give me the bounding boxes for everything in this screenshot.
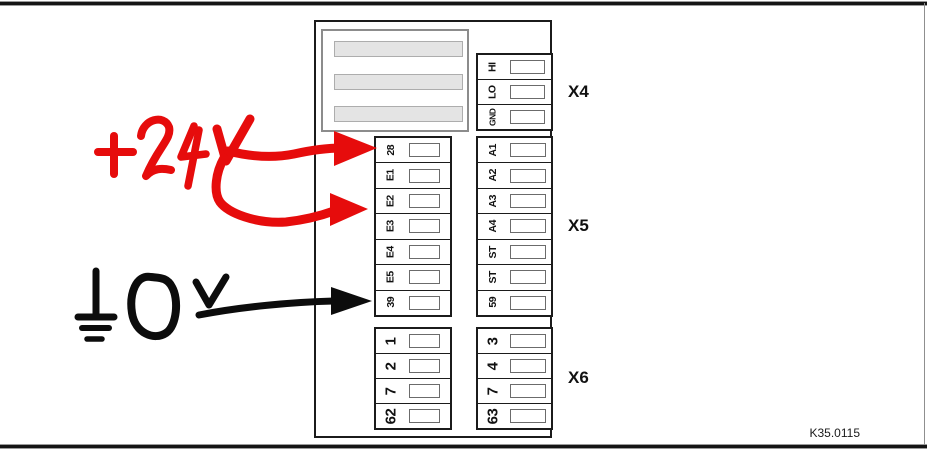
terminal-box	[409, 359, 440, 373]
terminal-column-x5-right: A1 A2 A3 A4 ST ST 59	[476, 136, 553, 317]
black-v-checkmark	[196, 277, 226, 305]
terminal-box	[409, 194, 440, 208]
terminal-box	[409, 296, 440, 310]
terminal-row-x5-right-st: ST	[478, 264, 551, 289]
terminal-row-x5-left-e2: E2	[376, 188, 450, 213]
terminal-label: E2	[386, 195, 397, 207]
terminal-label-wrap: 1	[378, 329, 404, 353]
terminal-row-x6-left-1: 1	[376, 329, 450, 353]
terminal-box	[510, 60, 545, 74]
terminal-label-wrap: 7	[480, 379, 506, 403]
block-label-x5: X5	[568, 216, 589, 236]
terminal-box	[409, 169, 440, 183]
terminal-label: A4	[488, 220, 499, 232]
terminal-row-x6-left-2: 2	[376, 353, 450, 378]
display-bar	[334, 41, 463, 57]
terminal-label-wrap: GND	[480, 105, 506, 129]
terminal-box	[510, 334, 546, 348]
terminal-label: 62	[384, 408, 399, 424]
terminal-row-x4-gnd: GND	[478, 104, 551, 129]
terminal-label-wrap: 2	[378, 354, 404, 378]
terminal-box	[510, 194, 546, 208]
terminal-row-x5-right-a2: A2	[478, 162, 551, 187]
terminal-box	[510, 169, 546, 183]
terminal-box	[510, 384, 546, 398]
terminal-label-wrap: ST	[480, 240, 506, 264]
terminal-box	[409, 270, 440, 284]
terminal-label: 4	[486, 362, 501, 370]
terminal-row-x5-right-a4: A4	[478, 213, 551, 238]
terminal-column-x4: HI LO GND	[476, 53, 553, 131]
terminal-label: 39	[386, 297, 397, 308]
terminal-label: HI	[488, 62, 499, 72]
terminal-label-wrap: HI	[480, 55, 506, 79]
terminal-row-x5-left-e5: E5	[376, 264, 450, 289]
figure-reference-number: K35.0115	[770, 426, 860, 440]
terminal-row-x4-hi: HI	[478, 55, 551, 79]
terminal-row-x6-right-4: 4	[478, 353, 551, 378]
red-digit-4-stem-stroke	[188, 130, 199, 186]
terminal-label-wrap: E2	[378, 189, 404, 213]
terminal-label: 2	[384, 362, 399, 370]
red-v-checkmark	[217, 119, 250, 161]
terminal-box	[409, 334, 440, 348]
terminal-box	[409, 409, 440, 423]
display-bar	[334, 106, 463, 122]
terminal-box	[409, 219, 440, 233]
terminal-label-wrap: A3	[480, 189, 506, 213]
terminal-box	[409, 384, 440, 398]
block-label-x4: X4	[568, 82, 589, 102]
terminal-label-wrap: 4	[480, 354, 506, 378]
terminal-row-x6-left-7: 7	[376, 378, 450, 403]
terminal-row-x5-right-st: ST	[478, 239, 551, 264]
terminal-row-x6-left-62: 62	[376, 403, 450, 428]
terminal-label: E1	[386, 170, 397, 182]
terminal-label: LO	[488, 85, 499, 99]
terminal-label: ST	[488, 271, 499, 283]
terminal-label: GND	[489, 108, 498, 125]
terminal-label: E5	[386, 271, 397, 283]
terminal-label-wrap: E4	[378, 240, 404, 264]
terminal-row-x6-right-7: 7	[478, 378, 551, 403]
terminal-box	[510, 110, 545, 124]
terminal-label: 3	[486, 337, 501, 345]
terminal-box	[510, 296, 546, 310]
terminal-label-wrap: E5	[378, 265, 404, 289]
frame-bottom-line	[0, 444, 927, 449]
terminal-row-x5-left-39: 39	[376, 290, 450, 315]
terminal-label-wrap: ST	[480, 265, 506, 289]
terminal-label-wrap: 63	[480, 404, 506, 428]
terminal-row-x5-left-28: 28	[376, 138, 450, 162]
terminal-label-wrap: 39	[378, 291, 404, 315]
terminal-box	[510, 143, 546, 157]
terminal-label: 1	[384, 337, 399, 345]
terminal-label-wrap: 7	[378, 379, 404, 403]
terminal-label-wrap: A1	[480, 138, 506, 162]
terminal-label-wrap: A4	[480, 214, 506, 238]
terminal-row-x4-lo: LO	[478, 79, 551, 104]
terminal-label: 7	[384, 387, 399, 395]
terminal-row-x5-left-e4: E4	[376, 239, 450, 264]
red-digit-2-stroke	[141, 120, 171, 176]
terminal-label-wrap: A2	[480, 163, 506, 187]
frame-right-line	[924, 3, 925, 445]
terminal-label: 7	[486, 387, 501, 395]
terminal-label-wrap: E3	[378, 214, 404, 238]
terminal-row-x5-left-e1: E1	[376, 162, 450, 187]
terminal-row-x6-right-63: 63	[478, 403, 551, 428]
red-digit-4-stroke	[181, 126, 206, 157]
frame-top-line	[0, 1, 927, 6]
terminal-row-x5-right-59: 59	[478, 290, 551, 315]
wiring-diagram-figure: HI LO GND 28 E1 E2 E3 E4	[0, 0, 927, 453]
terminal-column-x5-left: 28 E1 E2 E3 E4 E5 39	[374, 136, 452, 317]
terminal-label: 59	[488, 297, 499, 308]
display-bar	[334, 74, 463, 90]
block-label-x6: X6	[568, 368, 589, 388]
terminal-box	[510, 245, 546, 259]
terminal-label: E3	[386, 221, 397, 233]
terminal-label-wrap: LO	[480, 80, 506, 104]
terminal-box	[510, 270, 546, 284]
terminal-label: ST	[488, 246, 499, 258]
terminal-label: 28	[386, 145, 397, 156]
terminal-row-x5-right-a3: A3	[478, 188, 551, 213]
terminal-column-x6-left: 1 2 7 62	[374, 327, 452, 430]
terminal-label-wrap: 3	[480, 329, 506, 353]
terminal-label: A1	[488, 144, 499, 156]
display-module	[321, 29, 469, 132]
terminal-box	[510, 359, 546, 373]
terminal-label-wrap: 59	[480, 291, 506, 315]
terminal-label-wrap: 62	[378, 404, 404, 428]
terminal-row-x6-right-3: 3	[478, 329, 551, 353]
terminal-box	[510, 409, 546, 423]
terminal-label-wrap: 28	[378, 138, 404, 162]
terminal-box	[409, 245, 440, 259]
terminal-row-x5-right-a1: A1	[478, 138, 551, 162]
terminal-label: A2	[488, 169, 499, 181]
terminal-label: 63	[486, 408, 501, 424]
terminal-box	[510, 219, 546, 233]
terminal-box	[409, 143, 440, 157]
black-digit-0-stroke	[131, 277, 176, 336]
terminal-label: A3	[488, 195, 499, 207]
terminal-label: E4	[386, 246, 397, 258]
terminal-label-wrap: E1	[378, 163, 404, 187]
terminal-row-x5-left-e3: E3	[376, 213, 450, 238]
terminal-column-x6-right: 3 4 7 63	[476, 327, 553, 430]
terminal-box	[510, 85, 545, 99]
